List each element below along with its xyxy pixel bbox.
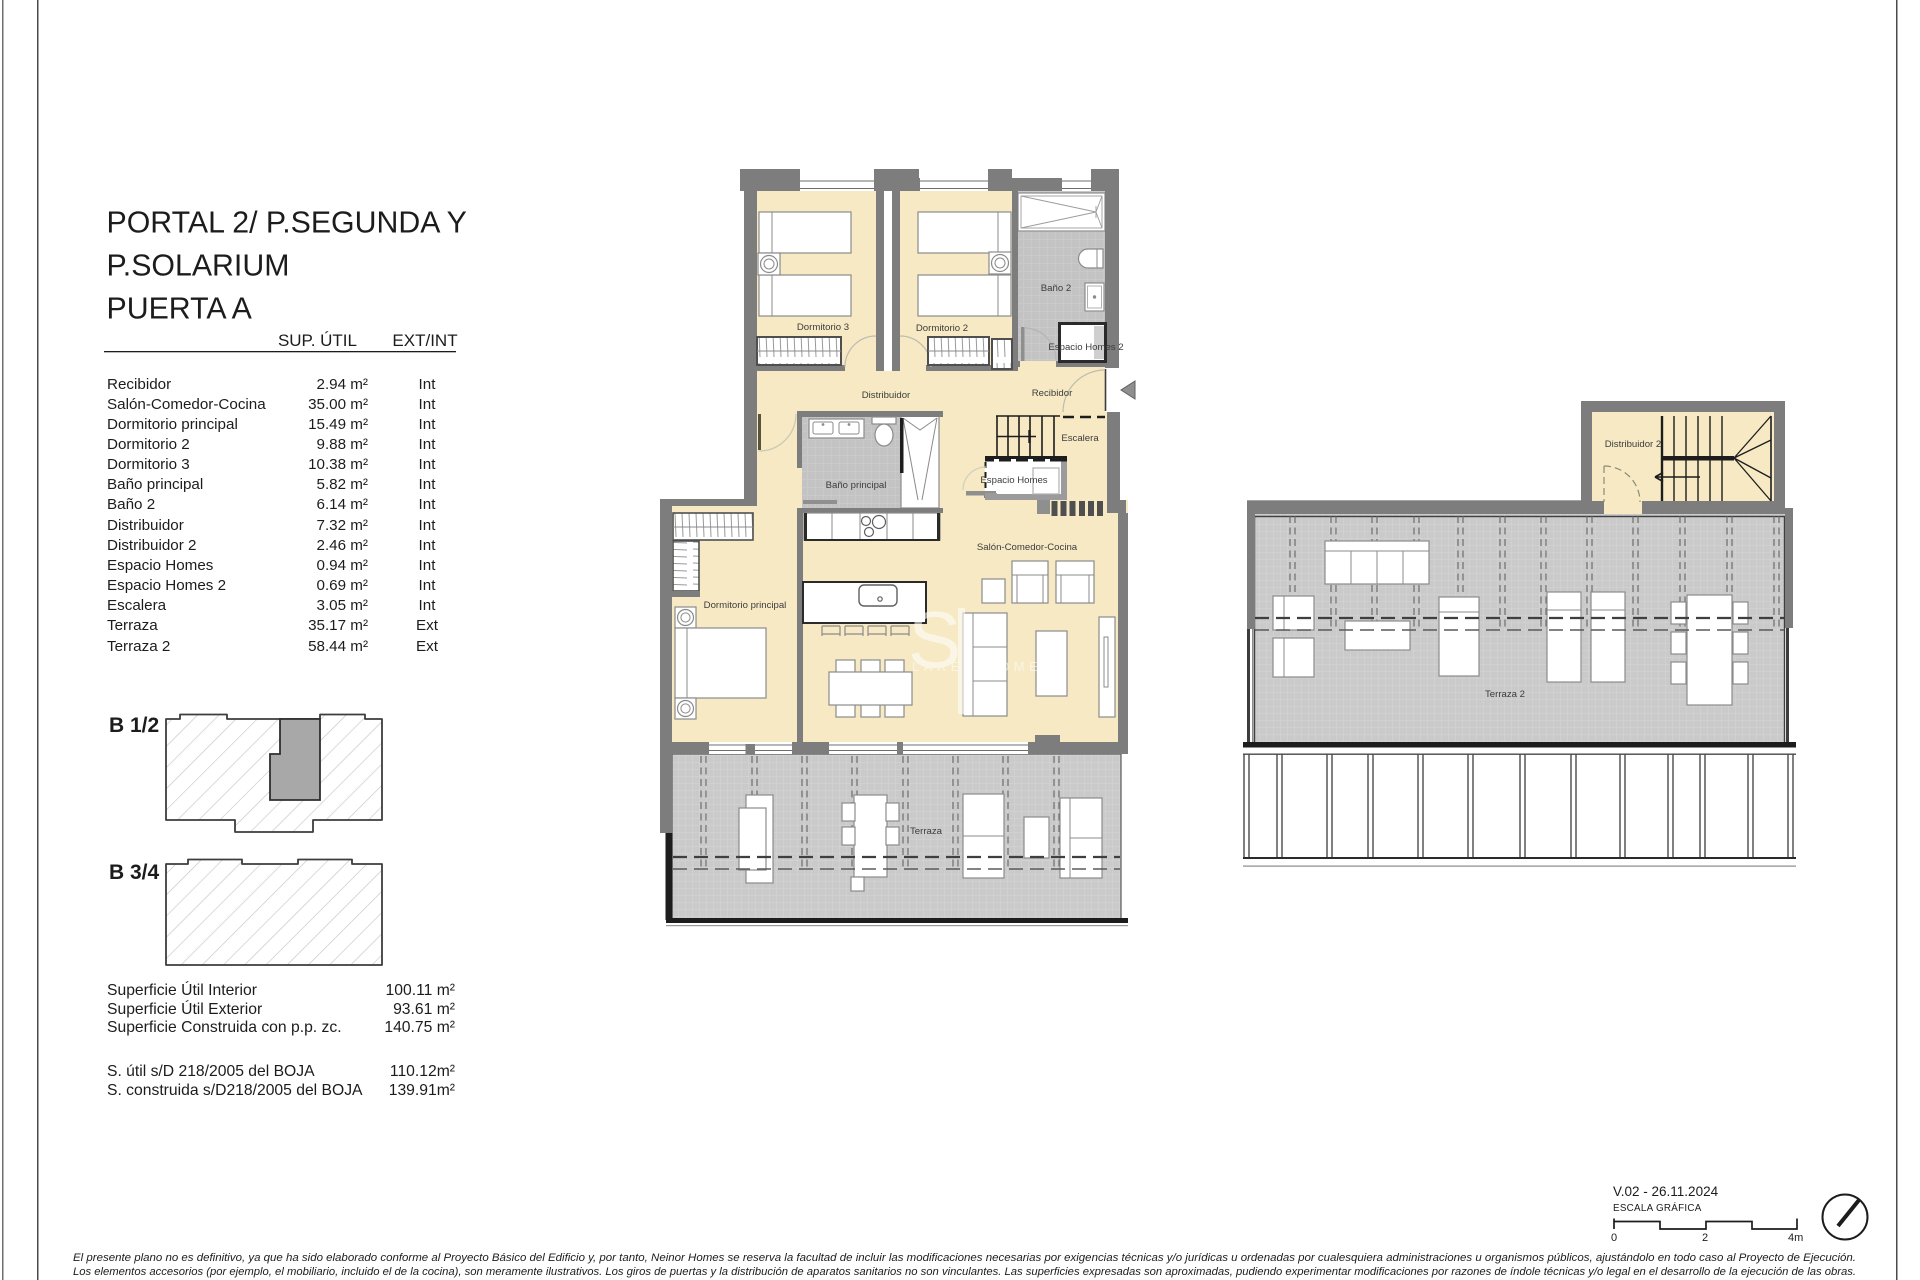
- svg-text:Ext: Ext: [416, 617, 439, 634]
- svg-text:Superficie Útil Exterior: Superficie Útil Exterior: [107, 999, 262, 1018]
- svg-text:Int: Int: [419, 577, 437, 594]
- svg-text:Superficie Construida con p.p.: Superficie Construida con p.p. zc.: [107, 1019, 342, 1036]
- svg-text:Int: Int: [419, 557, 437, 574]
- svg-text:Terraza: Terraza: [910, 826, 943, 837]
- svg-text:Baño principal: Baño principal: [826, 480, 887, 491]
- svg-text:0: 0: [1611, 1232, 1617, 1244]
- svg-text:Salón-Comedor-Cocina: Salón-Comedor-Cocina: [977, 542, 1078, 553]
- svg-text:58.44 m²: 58.44 m²: [308, 638, 368, 655]
- svg-text:Distribuidor: Distribuidor: [107, 517, 184, 534]
- svg-text:Terraza 2: Terraza 2: [1485, 689, 1525, 700]
- svg-text:Superficie Útil Interior: Superficie Útil Interior: [107, 980, 257, 999]
- svg-text:7.32 m²: 7.32 m²: [317, 517, 369, 534]
- svg-text:Dormitorio 2: Dormitorio 2: [107, 436, 190, 453]
- svg-text:Salón-Comedor-Cocina: Salón-Comedor-Cocina: [107, 396, 266, 413]
- svg-text:15.49 m²: 15.49 m²: [308, 416, 368, 433]
- svg-text:4m: 4m: [1788, 1232, 1803, 1244]
- svg-text:S. útil s/D 218/2005 del BOJA: S. útil s/D 218/2005 del BOJA: [107, 1063, 315, 1080]
- svg-text:5.82 m²: 5.82 m²: [317, 476, 369, 493]
- svg-text:Dormitorio principal: Dormitorio principal: [704, 600, 787, 611]
- svg-text:Dormitorio 2: Dormitorio 2: [916, 323, 968, 334]
- svg-text:9.88 m²: 9.88 m²: [317, 436, 369, 453]
- svg-text:Int: Int: [419, 396, 437, 413]
- svg-text:Int: Int: [419, 537, 437, 554]
- svg-text:Baño principal: Baño principal: [107, 476, 203, 493]
- svg-text:10.38 m²: 10.38 m²: [308, 456, 368, 473]
- svg-text:PUERTA A: PUERTA A: [107, 293, 253, 326]
- svg-text:Dormitorio 3: Dormitorio 3: [107, 456, 190, 473]
- svg-text:Terraza 2: Terraza 2: [107, 638, 170, 655]
- svg-text:Int: Int: [419, 436, 437, 453]
- svg-text:Int: Int: [419, 496, 437, 513]
- svg-text:B 3/4: B 3/4: [109, 861, 160, 884]
- svg-text:Int: Int: [419, 597, 437, 614]
- svg-text:35.17 m²: 35.17 m²: [308, 617, 368, 634]
- svg-text:Distribuidor 2: Distribuidor 2: [107, 537, 196, 554]
- svg-text:110.12m²: 110.12m²: [390, 1063, 455, 1080]
- svg-text:Espacio Homes 2: Espacio Homes 2: [1048, 342, 1123, 353]
- svg-text:Int: Int: [419, 376, 437, 393]
- svg-text:Los elementos accesorios (por: Los elementos accesorios (por ejemplo, e…: [73, 1266, 1856, 1278]
- svg-text:2.94 m²: 2.94 m²: [317, 376, 369, 393]
- svg-text:V.02 - 26.11.2024: V.02 - 26.11.2024: [1613, 1184, 1719, 1199]
- svg-text:Int: Int: [419, 517, 437, 534]
- svg-text:Baño 2: Baño 2: [1041, 283, 1071, 294]
- svg-text:B 1/2: B 1/2: [109, 714, 159, 737]
- svg-text:Escalera: Escalera: [1061, 433, 1099, 444]
- svg-text:Espacio Homes: Espacio Homes: [107, 557, 214, 574]
- svg-text:El presente plano no es defini: El presente plano no es definitivo, ya q…: [73, 1252, 1856, 1264]
- svg-text:6.14 m²: 6.14 m²: [317, 496, 369, 513]
- svg-text:35.00 m²: 35.00 m²: [308, 396, 368, 413]
- svg-text:Terraza: Terraza: [107, 617, 158, 634]
- svg-text:EXT/INT: EXT/INT: [392, 331, 457, 350]
- svg-text:P.SOLARIUM: P.SOLARIUM: [107, 250, 290, 283]
- svg-text:0.94 m²: 0.94 m²: [317, 557, 369, 574]
- svg-text:2.46 m²: 2.46 m²: [317, 537, 369, 554]
- svg-text:Distribuidor: Distribuidor: [862, 390, 911, 401]
- svg-text:SUP. ÚTIL: SUP. ÚTIL: [278, 331, 357, 350]
- svg-text:0.69 m²: 0.69 m²: [317, 577, 369, 594]
- svg-text:93.61 m²: 93.61 m²: [393, 1001, 455, 1018]
- svg-text:Recibidor: Recibidor: [107, 376, 171, 393]
- svg-text:Escalera: Escalera: [107, 597, 167, 614]
- svg-text:3.05 m²: 3.05 m²: [317, 597, 369, 614]
- svg-text:ESCALA GRÁFICA: ESCALA GRÁFICA: [1613, 1203, 1702, 1214]
- svg-text:Dormitorio principal: Dormitorio principal: [107, 416, 238, 433]
- svg-text:Distribuidor 2: Distribuidor 2: [1605, 439, 1662, 450]
- svg-text:Dormitorio 3: Dormitorio 3: [797, 322, 849, 333]
- svg-text:PORTAL 2/ P.SEGUNDA Y: PORTAL 2/ P.SEGUNDA Y: [107, 207, 467, 240]
- svg-text:Int: Int: [419, 456, 437, 473]
- svg-text:140.75 m²: 140.75 m²: [384, 1019, 455, 1036]
- svg-text:Baño 2: Baño 2: [107, 496, 155, 513]
- svg-text:Int: Int: [419, 416, 437, 433]
- svg-text:S. construida s/D218/2005 del: S. construida s/D218/2005 del BOJA: [107, 1082, 363, 1099]
- svg-text:Espacio Homes 2: Espacio Homes 2: [107, 577, 226, 594]
- svg-text:Int: Int: [419, 476, 437, 493]
- svg-text:100.11 m²: 100.11 m²: [386, 982, 455, 999]
- svg-text:139.91m²: 139.91m²: [389, 1082, 455, 1099]
- svg-text:Espacio Homes: Espacio Homes: [980, 475, 1047, 486]
- svg-text:2: 2: [1702, 1232, 1708, 1244]
- svg-text:LARES HOMES: LARES HOMES: [912, 659, 1055, 674]
- svg-text:Recibidor: Recibidor: [1032, 388, 1073, 399]
- svg-text:Ext: Ext: [416, 638, 439, 655]
